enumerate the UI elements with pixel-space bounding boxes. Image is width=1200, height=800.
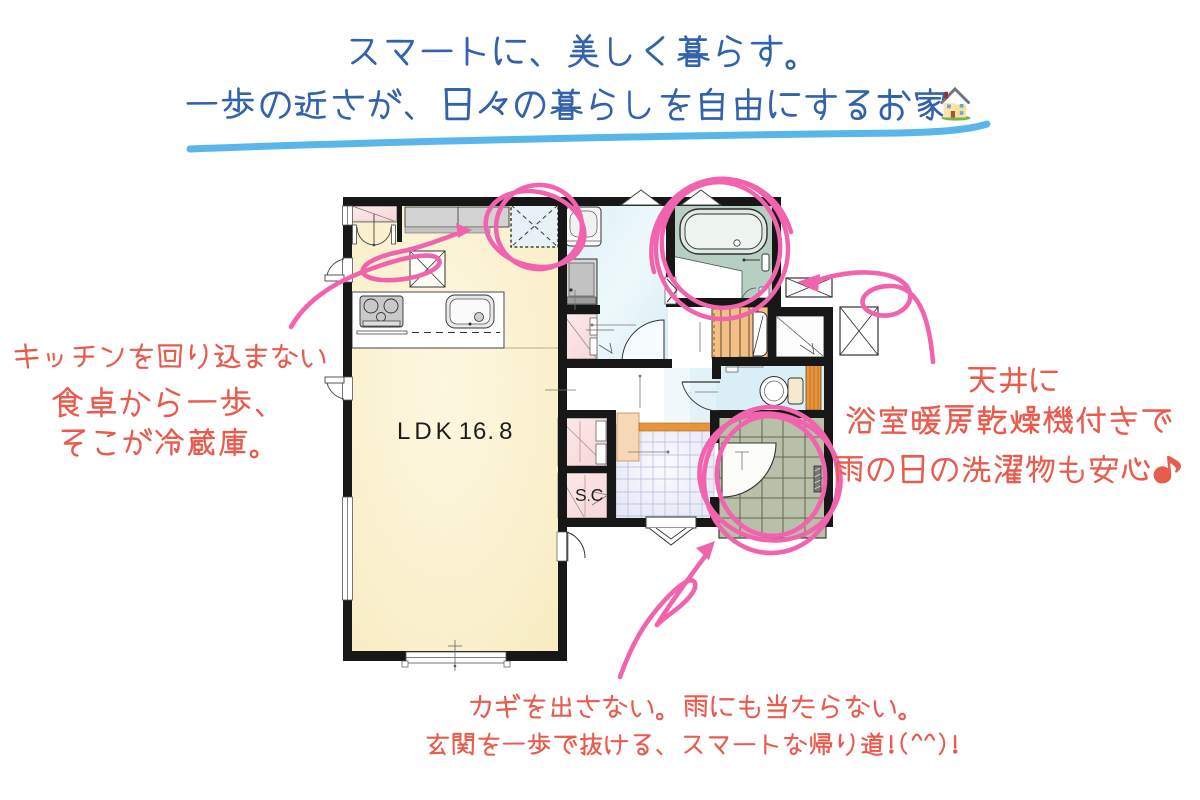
svg-text:S.C: S.C xyxy=(575,485,603,505)
